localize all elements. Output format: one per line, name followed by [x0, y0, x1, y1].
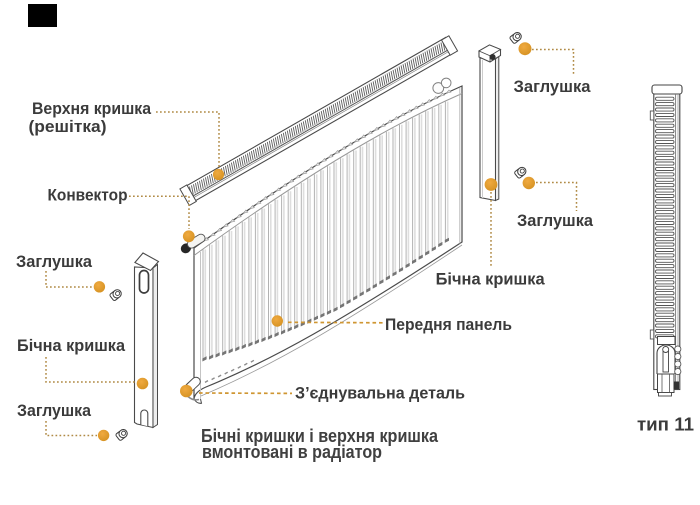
svg-text:тип 11: тип 11 — [637, 415, 694, 435]
svg-text:Передня панель: Передня панель — [385, 315, 512, 334]
svg-text:З’єднувальна деталь: З’єднувальна деталь — [295, 384, 465, 403]
svg-text:Заглушка: Заглушка — [16, 252, 93, 271]
svg-text:Бічна кришка: Бічна кришка — [436, 270, 546, 289]
svg-text:Заглушка: Заглушка — [17, 401, 91, 420]
svg-text:(решітка): (решітка) — [29, 117, 107, 136]
svg-text:Верхня кришка: Верхня кришка — [32, 99, 152, 118]
svg-text:Заглушка: Заглушка — [514, 77, 592, 96]
svg-text:вмонтовані в радіатор: вмонтовані в радіатор — [202, 441, 382, 462]
svg-text:Конвектор: Конвектор — [48, 186, 128, 205]
svg-text:Бічна кришка: Бічна кришка — [17, 336, 126, 355]
svg-text:Заглушка: Заглушка — [517, 211, 594, 230]
